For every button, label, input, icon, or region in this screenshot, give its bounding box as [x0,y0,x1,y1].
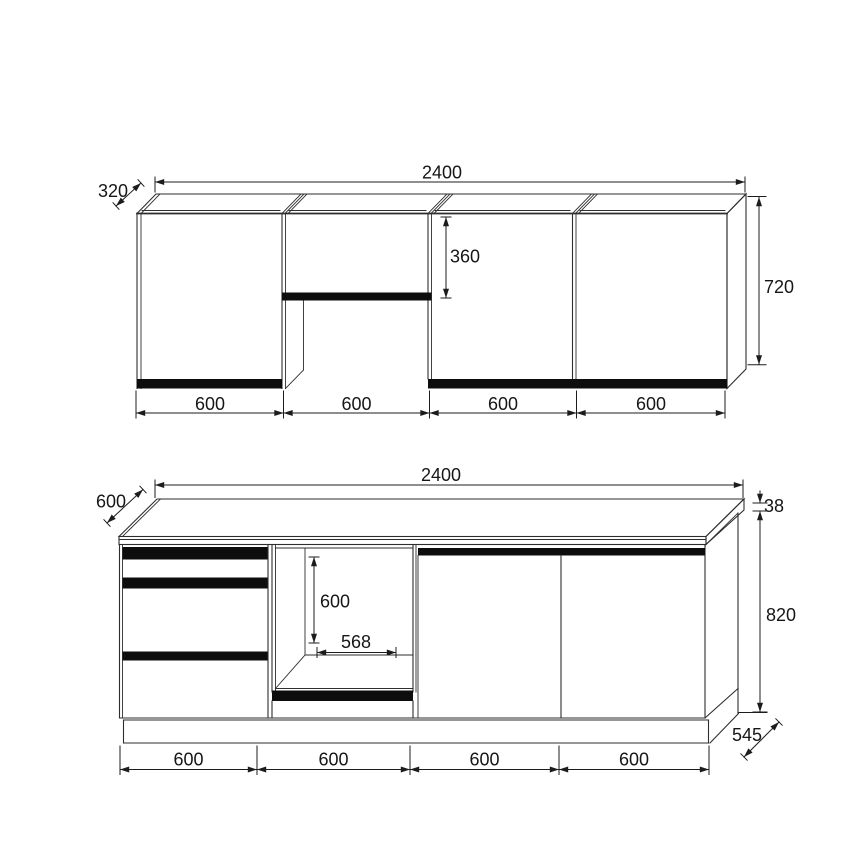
dim-base-worktop-thickness-label: 38 [764,496,784,516]
dim-base-section-2-label: 600 [318,750,348,770]
dim-upper-flap-height: 360 [441,217,480,298]
dim-upper-section-3-label: 600 [488,394,518,414]
dim-base-body-height: 820 [739,511,796,713]
wall-left-door-bottom-strip [137,379,282,389]
door-unit [418,548,705,718]
drawer-3-groove [123,652,269,661]
wall-right-doors-bottom-strip [428,379,727,389]
base-cabinet-body [119,499,744,743]
dim-base-section-4-label: 600 [619,750,649,770]
dim-base-niche-height: 600 [309,557,350,643]
drawing-sheet: 2400 320 360 720 [0,0,868,868]
doors-groove [418,548,705,556]
dim-upper-section-1-label: 600 [195,394,225,414]
dim-upper-total-width: 2400 [155,163,745,193]
drawer-1-groove [123,547,269,560]
dim-base-sections: 600 600 600 600 [120,746,709,775]
dim-base-body-depth-label: 545 [732,725,762,745]
dim-base-body-height-label: 820 [766,605,796,625]
niche-drawer-groove [272,691,413,702]
dim-upper-height: 720 [748,197,794,365]
wall-cabinet-side-panel [727,194,746,389]
dim-base-body-depth: 545 [732,719,782,760]
dim-upper-flap-height-label: 360 [450,247,480,267]
dim-base-niche-width-label: 568 [341,632,371,652]
kitchen-elevation-drawing: 2400 320 360 720 [0,0,868,868]
dim-upper-total-width-label: 2400 [422,163,462,183]
base-cabinets-drawing: 2400 600 38 820 545 [96,465,796,775]
wall-open-niche [286,301,304,389]
dim-base-worktop-depth-label: 600 [96,492,126,512]
dim-base-niche-height-label: 600 [320,592,350,612]
dim-upper-depth-label: 320 [98,181,128,201]
dim-upper-height-label: 720 [764,277,794,297]
drawer-unit [123,545,269,719]
dim-base-total-width-label: 2400 [421,465,461,485]
wall-cabinet-body [137,194,746,389]
dim-upper-section-2-label: 600 [341,394,371,414]
wall-flap-door-bottom-strip [282,293,432,301]
dim-base-total-width: 2400 [155,465,743,498]
dim-base-niche-width: 568 [317,632,396,658]
dim-upper-section-4-label: 600 [636,394,666,414]
dim-base-section-1-label: 600 [173,750,203,770]
dim-upper-depth: 320 [98,180,144,210]
wall-cabinets-drawing: 2400 320 360 720 [98,163,794,419]
drawer-2-groove [123,578,269,589]
worktop [119,499,744,545]
dim-upper-sections: 600 600 600 600 [136,391,725,418]
dim-base-section-3-label: 600 [469,750,499,770]
dim-base-worktop-thickness: 38 [753,491,784,516]
